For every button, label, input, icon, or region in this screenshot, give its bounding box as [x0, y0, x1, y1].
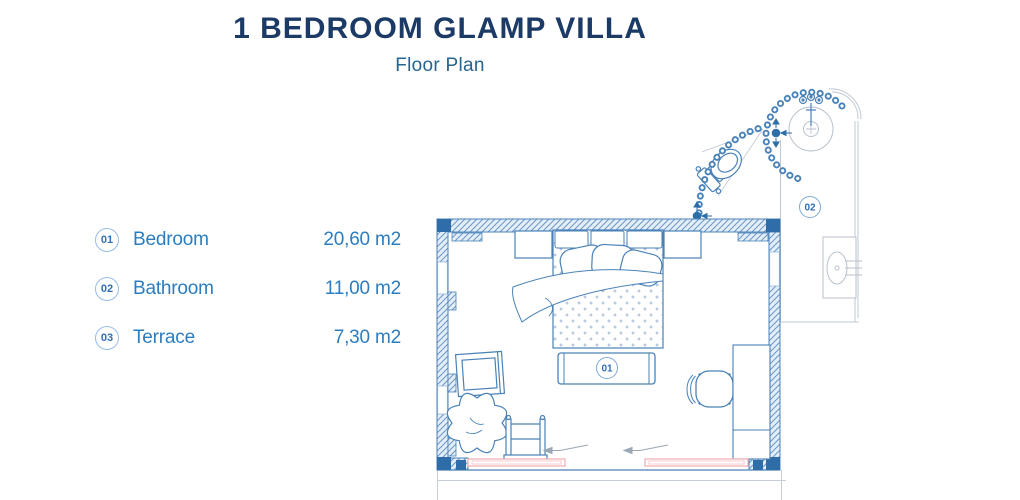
sliding-doors: [468, 459, 748, 466]
shower-head-icon: [800, 94, 823, 127]
door-hinge-icon: [772, 119, 792, 147]
floor-plan-drawing: 02: [0, 0, 1020, 500]
slide-arrows: [544, 445, 668, 454]
room-number-02: 02: [804, 203, 816, 214]
bed-bench: 01: [558, 353, 655, 384]
page: 1 BEDROOM GLAMP VILLA Floor Plan 01 Bedr…: [0, 0, 1020, 500]
terrace-outline: [437, 470, 786, 500]
armchair: [687, 371, 733, 407]
bathroom-label: 02: [800, 197, 821, 218]
wardrobe: [733, 345, 770, 459]
room-number-01: 01: [601, 364, 613, 375]
shower: [789, 94, 833, 152]
sink-vanity: [823, 237, 862, 298]
chair: [504, 416, 547, 461]
tv-stand: [456, 351, 505, 396]
